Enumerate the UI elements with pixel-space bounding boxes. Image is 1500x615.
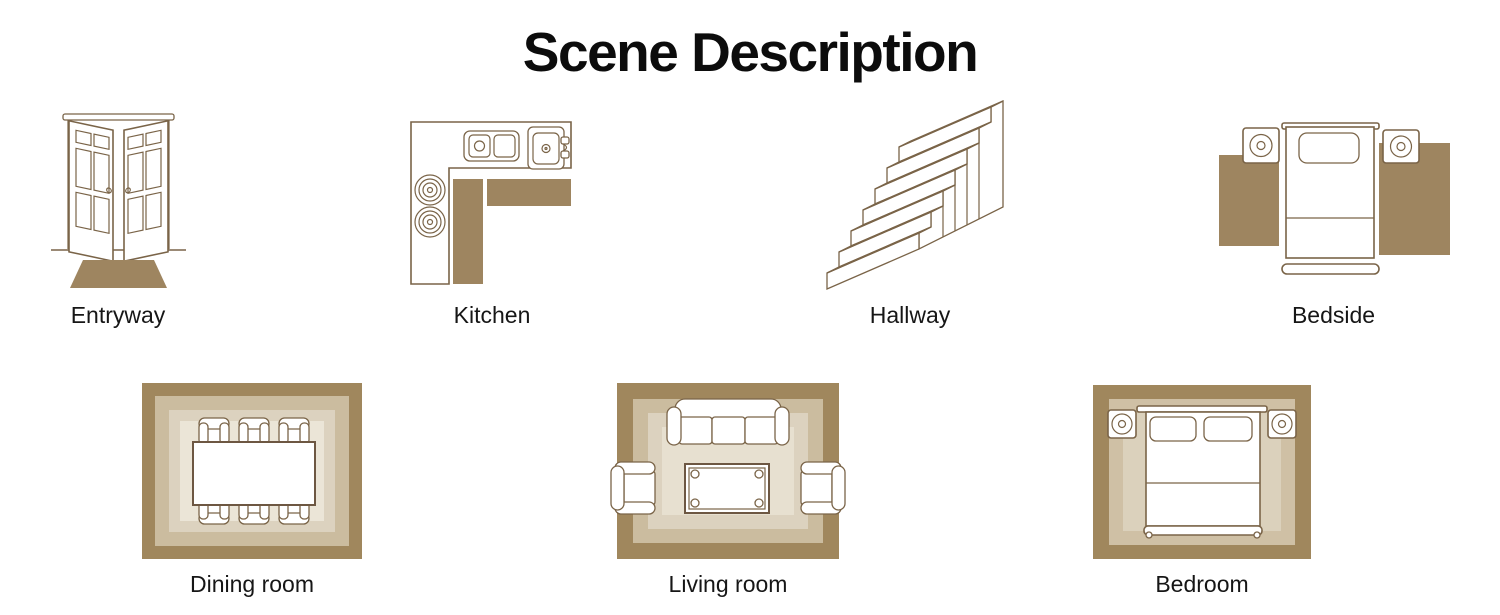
scene-label-bedroom: Bedroom bbox=[1155, 571, 1248, 598]
coffee-table bbox=[685, 464, 769, 513]
kitchen-runner-rug-horizontal bbox=[487, 179, 571, 206]
hallway-art bbox=[813, 100, 1008, 290]
single-bed-with-nightstands-and-side-rugs-icon bbox=[1216, 118, 1451, 290]
right-nightstand bbox=[1383, 130, 1419, 163]
kitchen-art bbox=[407, 100, 577, 290]
left-bedside-rug bbox=[1219, 155, 1279, 246]
right-nightstand bbox=[1268, 410, 1296, 438]
left-armchair bbox=[611, 462, 655, 514]
dining-room-art bbox=[142, 383, 362, 559]
double-bed bbox=[1137, 406, 1267, 538]
kitchen-runner-rug-vertical bbox=[453, 179, 483, 284]
staircase-icon bbox=[813, 100, 1008, 290]
scene-label-entryway: Entryway bbox=[71, 302, 166, 329]
l-shaped-kitchen-counter-with-runner-rug-icon bbox=[407, 118, 577, 290]
entryway-art bbox=[51, 100, 186, 290]
living-room-art bbox=[609, 383, 847, 559]
scene-hallway: Hallway bbox=[812, 100, 1008, 329]
dining-chairs-top bbox=[199, 418, 309, 445]
scene-bedroom: Bedroom bbox=[1093, 383, 1311, 598]
scene-label-hallway: Hallway bbox=[870, 302, 951, 329]
bedside-art bbox=[1216, 100, 1451, 290]
page-title: Scene Description bbox=[0, 22, 1500, 83]
scene-dining-room: Dining room bbox=[142, 383, 362, 598]
dining-table-with-six-chairs-on-rug-icon bbox=[142, 383, 362, 559]
bedroom-art bbox=[1093, 383, 1311, 559]
scene-label-bedside: Bedside bbox=[1292, 302, 1375, 329]
scene-bedside: Bedside bbox=[1216, 100, 1451, 329]
doormat bbox=[70, 260, 167, 288]
cooktop bbox=[464, 131, 519, 161]
sink bbox=[528, 127, 569, 169]
sofa-armchairs-coffee-table-on-rug-icon bbox=[609, 383, 847, 559]
single-bed bbox=[1282, 123, 1379, 274]
dining-table bbox=[193, 442, 315, 505]
sofa bbox=[667, 399, 789, 445]
right-armchair bbox=[801, 462, 845, 514]
scene-label-kitchen: Kitchen bbox=[454, 302, 531, 329]
open-double-doors-with-doormat-icon bbox=[51, 112, 186, 290]
left-nightstand bbox=[1243, 128, 1279, 163]
double-bed-with-nightstands-on-rug-icon bbox=[1093, 385, 1311, 559]
scene-living-room: Living room bbox=[609, 383, 847, 598]
scene-label-living-room: Living room bbox=[669, 571, 788, 598]
scene-label-dining-room: Dining room bbox=[190, 571, 314, 598]
left-nightstand bbox=[1108, 410, 1136, 438]
scene-kitchen: Kitchen bbox=[406, 100, 578, 329]
scene-entryway: Entryway bbox=[38, 100, 198, 329]
